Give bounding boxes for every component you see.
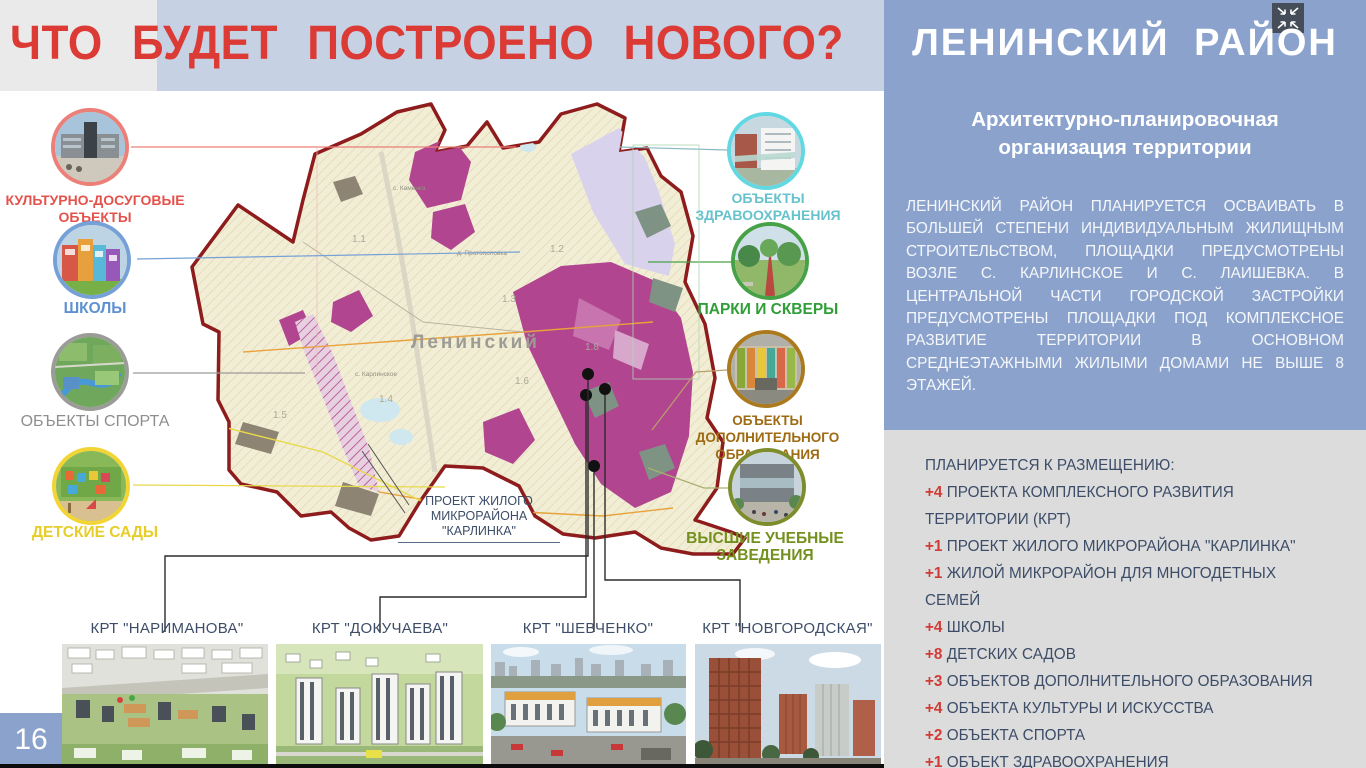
svg-text:с. Карлинское: с. Карлинское bbox=[355, 371, 397, 378]
legend-circle-schools bbox=[53, 221, 131, 299]
svg-text:1.5: 1.5 bbox=[273, 410, 287, 421]
legend-label-health: ОБЪЕКТЫ ЗДРАВООХРАНЕНИЯ bbox=[668, 190, 868, 224]
svg-text:1.8: 1.8 bbox=[585, 342, 599, 353]
plan-count: +4 bbox=[925, 700, 942, 717]
project-label-narimanova: КРТ "НАРИМАНОВА" bbox=[87, 620, 247, 637]
karlinka-annotation-line2: МИКРОРАЙОНА "КАРЛИНКА" bbox=[398, 509, 560, 539]
legend-label-parks: ПАРКИ И СКВЕРЫ bbox=[668, 301, 868, 318]
svg-text:1.3: 1.3 bbox=[502, 294, 516, 305]
plan-item: +4 ПРОЕКТА КОМПЛЕКСНОГО РАЗВИТИЯ ТЕРРИТО… bbox=[925, 479, 1332, 533]
culture-photo bbox=[55, 112, 125, 182]
plan-count: +8 bbox=[925, 646, 942, 663]
legend-circle-dop-education bbox=[727, 330, 805, 408]
plan-item-label: ОБЪЕКТА КУЛЬТУРЫ И ИСКУССТВА bbox=[942, 700, 1213, 717]
svg-text:с. Каменка: с. Каменка bbox=[393, 185, 426, 192]
svg-text:1.6: 1.6 bbox=[515, 376, 529, 387]
karlinka-annotation-line1: ПРОЕКТ ЖИЛОГО bbox=[398, 494, 560, 509]
plan-item: +4 ШКОЛЫ bbox=[925, 614, 1332, 641]
legend-circle-parks bbox=[731, 222, 809, 300]
svg-text:1.1: 1.1 bbox=[352, 234, 366, 245]
plan-count: +1 bbox=[925, 538, 942, 555]
plan-item: +1 ЖИЛОЙ МИКРОРАЙОН ДЛЯ МНОГОДЕТНЫХ СЕМЕ… bbox=[925, 560, 1332, 614]
plan-item: +1 ОБЪЕКТ ЗДРАВООХРАНЕНИЯ bbox=[925, 749, 1332, 768]
legend-label-university: ВЫСШИЕ УЧЕБНЫЕ ЗАВЕДЕНИЯ bbox=[640, 530, 890, 564]
plan-item: +3 ОБЪЕКТОВ ДОПОЛНИТЕЛЬНОГО ОБРАЗОВАНИЯ bbox=[925, 668, 1332, 695]
plan-item-label: ОБЪЕКТОВ ДОПОЛНИТЕЛЬНОГО ОБРАЗОВАНИЯ bbox=[942, 673, 1312, 690]
sidebar-gray-panel: ПЛАНИРУЕТСЯ К РАЗМЕЩЕНИЮ: +4 ПРОЕКТА КОМ… bbox=[884, 430, 1366, 768]
svg-text:1.2: 1.2 bbox=[550, 244, 564, 255]
park-photo bbox=[735, 226, 805, 296]
plan-item-label: ПРОЕКТ ЖИЛОГО МИКРОРАЙОНА "КАРЛИНКА" bbox=[942, 538, 1295, 555]
plan-item-label: ОБЪЕКТА СПОРТА bbox=[942, 727, 1085, 744]
plan-item: +2 ОБЪЕКТА СПОРТА bbox=[925, 722, 1332, 749]
legend-label-sport: ОБЪЕКТЫ СПОРТА bbox=[5, 413, 185, 430]
svg-text:1.4: 1.4 bbox=[379, 394, 393, 405]
plan-heading: ПЛАНИРУЕТСЯ К РАЗМЕЩЕНИЮ: bbox=[925, 452, 1332, 479]
plan-item: +1 ПРОЕКТ ЖИЛОГО МИКРОРАЙОНА "КАРЛИНКА" bbox=[925, 533, 1332, 560]
legend-circle-university bbox=[728, 448, 806, 526]
sidebar-paragraph: ЛЕНИНСКИЙ РАЙОН ПЛАНИРУЕТСЯ ОСВАИВАТЬ В … bbox=[906, 196, 1344, 398]
school-photo bbox=[57, 225, 127, 295]
plan-item-label: ЖИЛОЙ МИКРОРАЙОН ДЛЯ МНОГОДЕТНЫХ СЕМЕЙ bbox=[925, 565, 1276, 609]
svg-text:д. Протопоповка: д. Протопоповка bbox=[457, 250, 507, 257]
slide: ЧТО БУДЕТ ПОСТРОЕНО НОВОГО? bbox=[0, 0, 1366, 768]
project-label-shevchenko: КРТ "ШЕВЧЕНКО" bbox=[508, 620, 668, 637]
plan-item: +4 ОБЪЕКТА КУЛЬТУРЫ И ИСКУССТВА bbox=[925, 695, 1332, 722]
plan-item-label: ПРОЕКТА КОМПЛЕКСНОГО РАЗВИТИЯ ТЕРРИТОРИИ… bbox=[925, 484, 1234, 528]
page-number: 16 bbox=[0, 713, 62, 766]
project-label-dokuchaeva: КРТ "ДОКУЧАЕВА" bbox=[300, 620, 460, 637]
bottom-strip bbox=[0, 764, 884, 768]
project-image-shevchenko bbox=[491, 644, 686, 765]
plan-item-label: ДЕТСКИХ САДОВ bbox=[942, 646, 1075, 663]
plan-count: +4 bbox=[925, 484, 942, 501]
plan-count: +2 bbox=[925, 727, 942, 744]
district-title: ЛЕНИНСКИЙ РАЙОН bbox=[884, 22, 1366, 65]
dop-education-photo bbox=[731, 334, 801, 404]
project-image-narimanova bbox=[62, 644, 268, 765]
plan-count: +1 bbox=[925, 754, 942, 768]
page-title: ЧТО БУДЕТ ПОСТРОЕНО НОВОГО? bbox=[10, 16, 893, 71]
plan-count: +1 bbox=[925, 565, 942, 582]
plan-count: +4 bbox=[925, 619, 942, 636]
map-district-label: Ленинский bbox=[411, 332, 540, 353]
project-image-novgorodskaya bbox=[695, 644, 881, 765]
sidebar: ЛЕНИНСКИЙ РАЙОН Архитектурно-планировочн… bbox=[884, 0, 1366, 768]
plan-item-label: ОБЪЕКТ ЗДРАВООХРАНЕНИЯ bbox=[942, 754, 1168, 768]
plan-item-label: ШКОЛЫ bbox=[942, 619, 1004, 636]
legend-circle-culture bbox=[51, 108, 129, 186]
sport-photo bbox=[55, 337, 125, 407]
kindergarten-photo bbox=[56, 451, 126, 521]
karlinka-annotation: ПРОЕКТ ЖИЛОГО МИКРОРАЙОНА "КАРЛИНКА" bbox=[398, 494, 560, 543]
legend-label-schools: ШКОЛЫ bbox=[5, 300, 185, 317]
sidebar-subtitle: Архитектурно-планировочная организация т… bbox=[914, 106, 1336, 162]
plan-count: +3 bbox=[925, 673, 942, 690]
plan-item: +8 ДЕТСКИХ САДОВ bbox=[925, 641, 1332, 668]
legend-label-kindergarten: ДЕТСКИЕ САДЫ bbox=[5, 524, 185, 541]
project-image-dokuchaeva bbox=[276, 644, 483, 765]
health-photo bbox=[731, 116, 801, 186]
sidebar-blue-panel: ЛЕНИНСКИЙ РАЙОН Архитектурно-планировочн… bbox=[884, 0, 1366, 430]
legend-circle-health bbox=[727, 112, 805, 190]
legend-circle-sport bbox=[51, 333, 129, 411]
university-photo bbox=[732, 452, 802, 522]
legend-circle-kindergarten bbox=[52, 447, 130, 525]
project-label-novgorodskaya: КРТ "НОВГОРОДСКАЯ" bbox=[700, 620, 875, 637]
plan-list: ПЛАНИРУЕТСЯ К РАЗМЕЩЕНИЮ: +4 ПРОЕКТА КОМ… bbox=[925, 452, 1332, 768]
